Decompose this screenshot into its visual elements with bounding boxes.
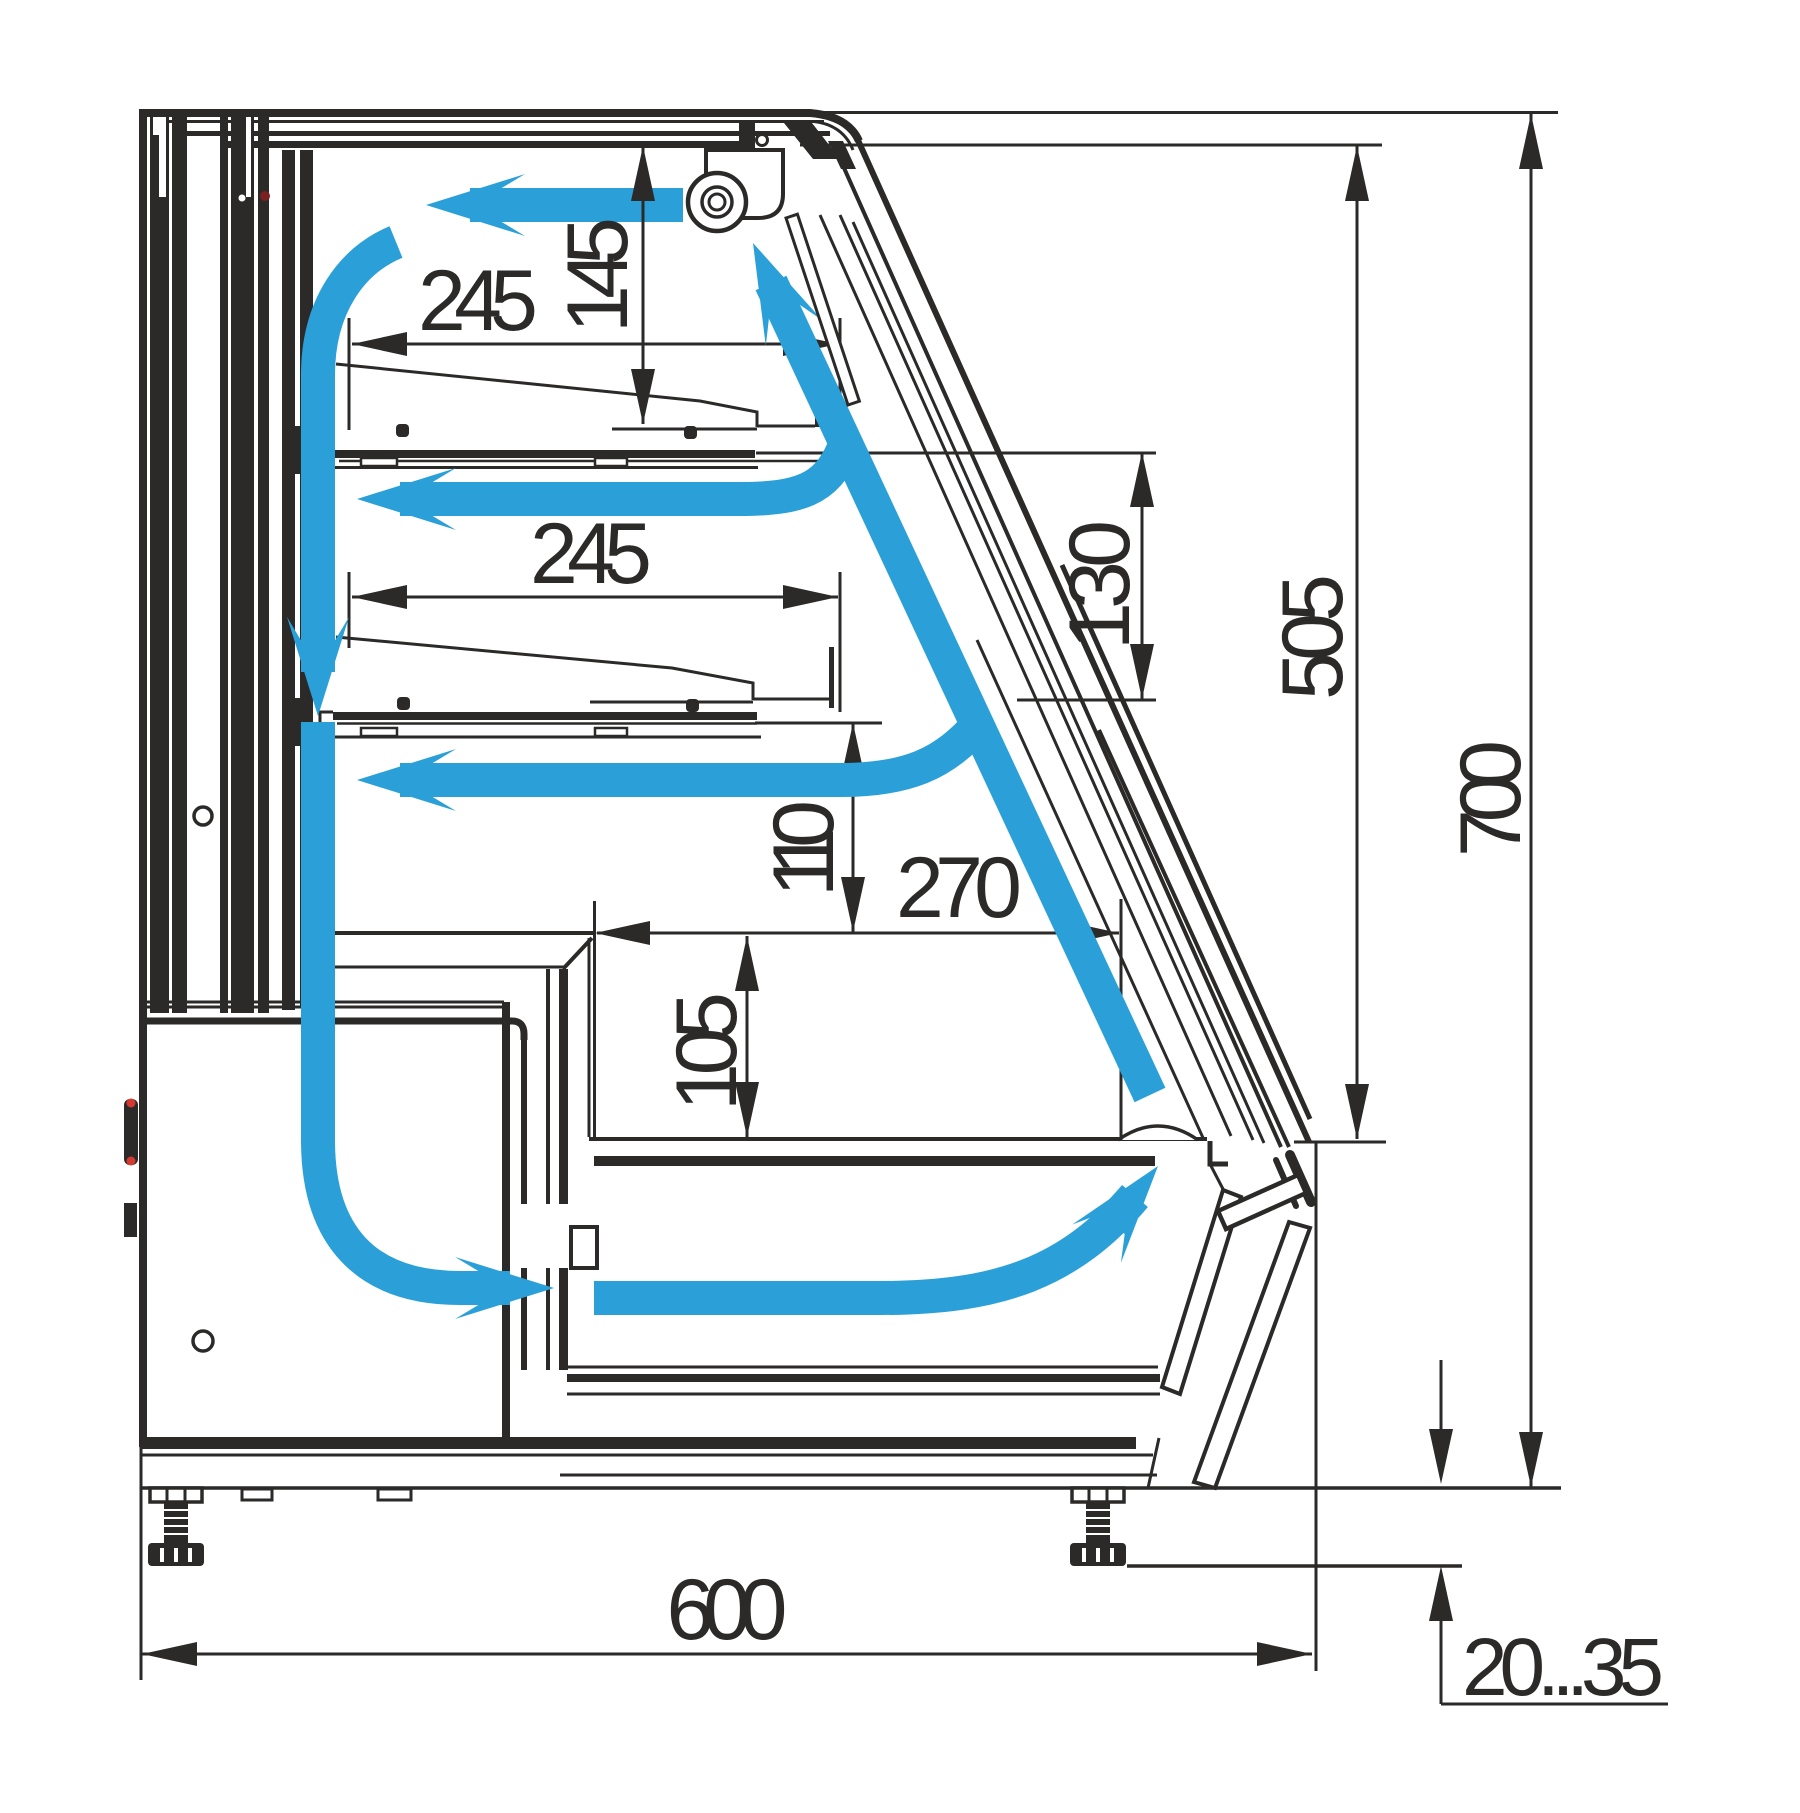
svg-text:130: 130: [1052, 520, 1148, 650]
svg-text:245: 245: [530, 506, 652, 602]
svg-text:505: 505: [1265, 574, 1361, 700]
svg-text:105: 105: [659, 992, 755, 1111]
svg-text:20...35: 20...35: [1462, 1622, 1664, 1713]
svg-text:270: 270: [896, 840, 1022, 936]
svg-text:245: 245: [418, 253, 538, 349]
svg-text:110: 110: [756, 800, 852, 897]
svg-text:700: 700: [1443, 740, 1539, 857]
svg-text:145: 145: [550, 217, 646, 333]
svg-text:600: 600: [667, 1562, 788, 1658]
